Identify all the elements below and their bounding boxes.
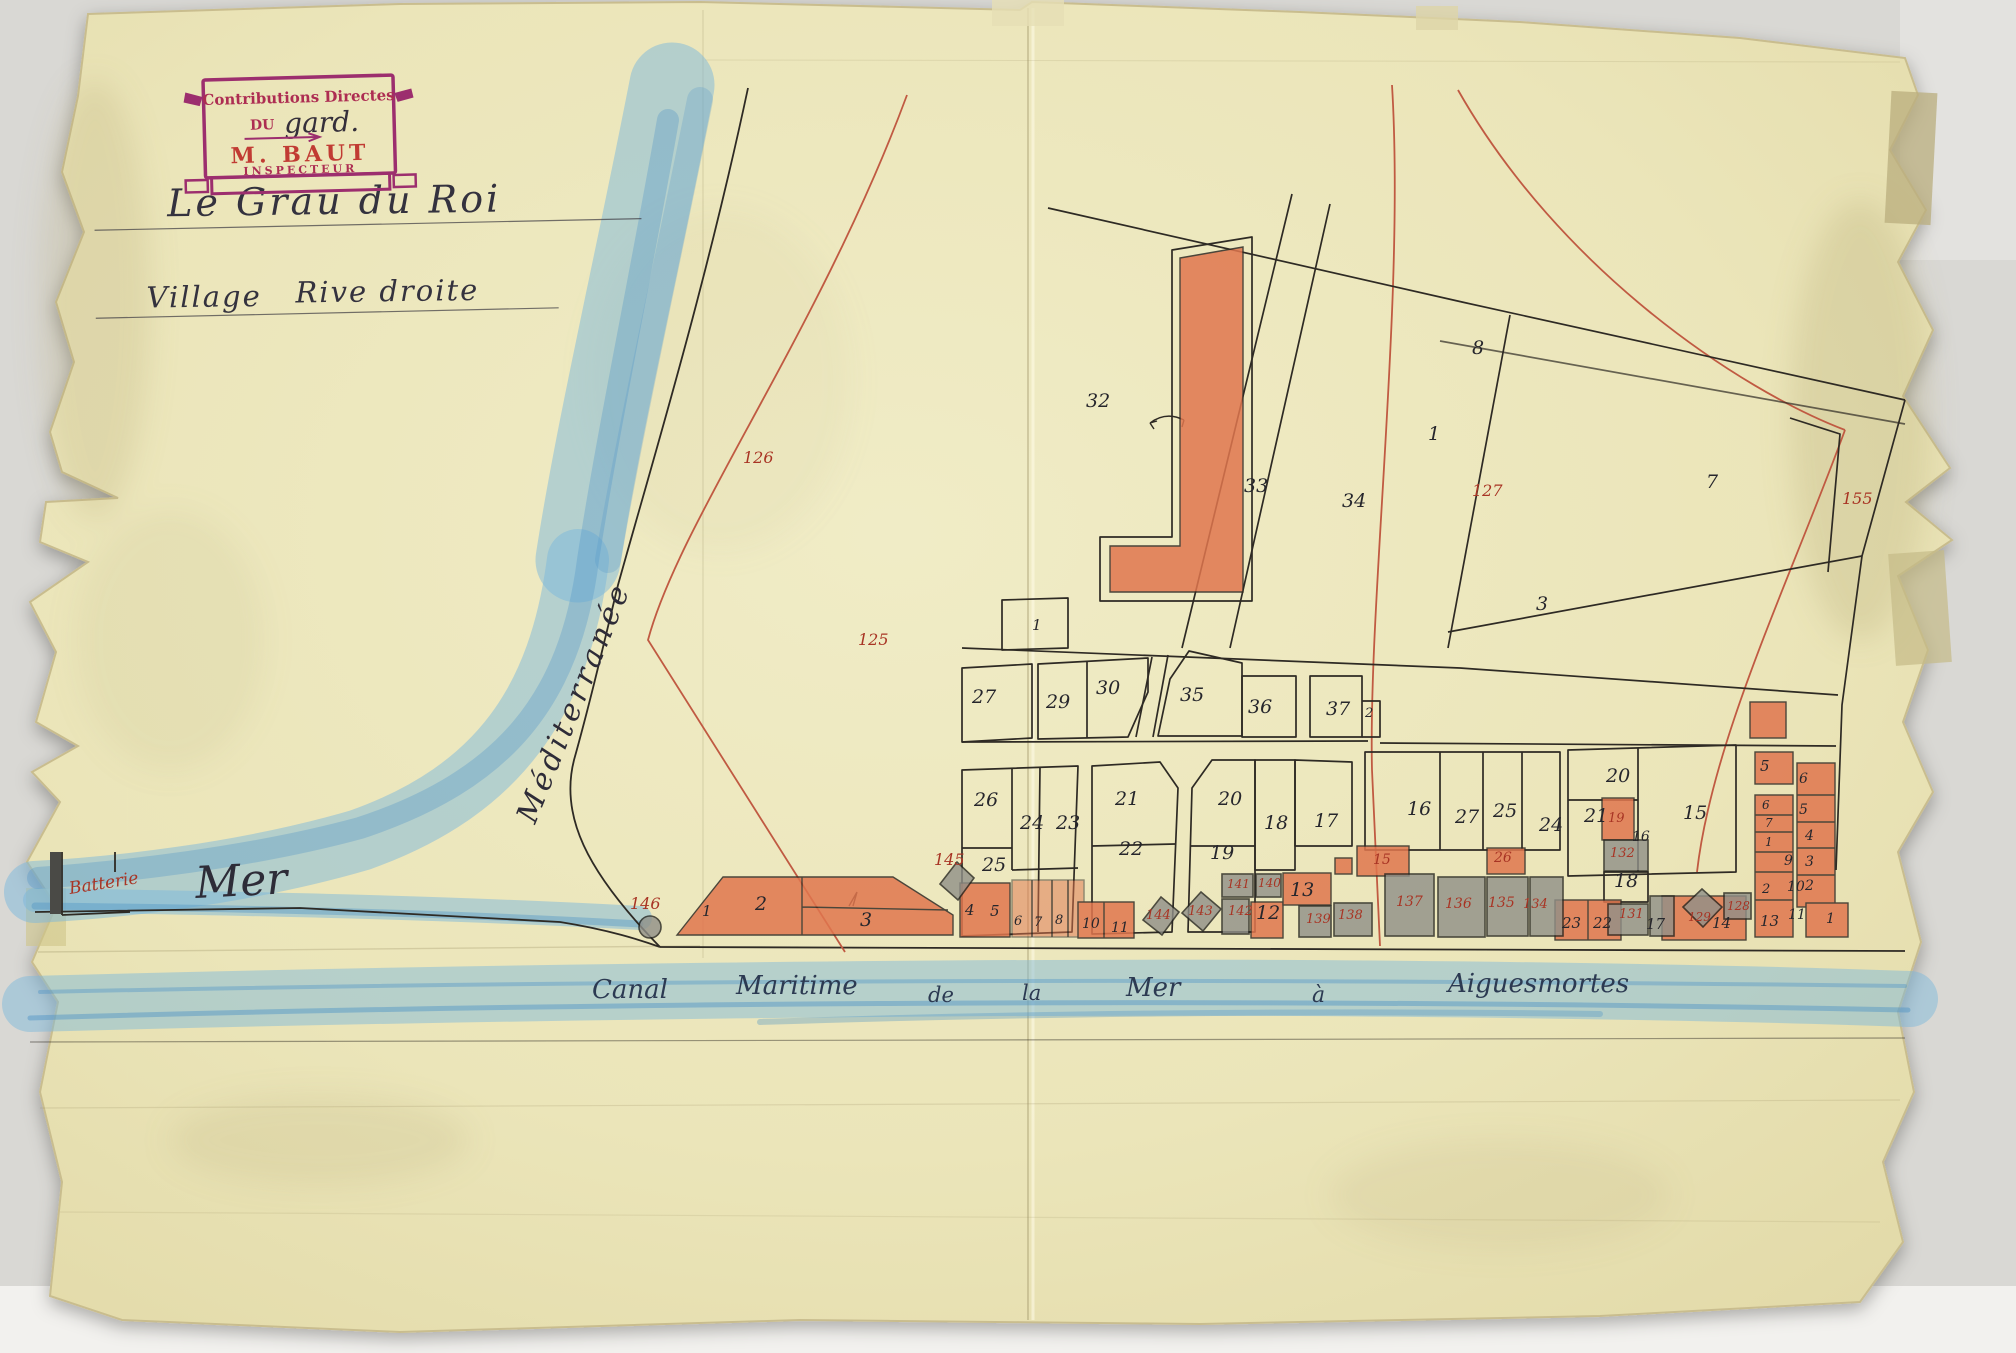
red-number: 135 — [1488, 895, 1515, 911]
red-number: 128 — [1727, 899, 1750, 913]
canal-word: Mer — [1125, 973, 1182, 1003]
red-number: 138 — [1338, 908, 1363, 923]
canal-word: Canal — [592, 975, 668, 1005]
parcel-number: 21 — [1114, 788, 1139, 810]
parcel-number: 21 — [1583, 805, 1608, 827]
red-number: 139 — [1306, 912, 1331, 927]
canal-word: la — [1022, 981, 1041, 1005]
parcel-number: 13 — [1760, 912, 1779, 930]
red-number: 142 — [1228, 904, 1253, 919]
parcel-number: 1 — [702, 902, 712, 920]
parcel-number: 3 — [1536, 593, 1548, 615]
subtitle-village: Village — [146, 279, 262, 315]
parcel-number: 9 — [1784, 853, 1793, 869]
parcel-number: 17 — [1314, 810, 1339, 832]
parcel-number: 6 — [1014, 914, 1022, 929]
parcel-number: 32 — [1086, 390, 1110, 412]
parcel-number: 29 — [1045, 691, 1070, 713]
parcel-number: 7 — [1706, 471, 1719, 493]
red-number: 19 — [1608, 811, 1625, 826]
photographed-map-scene: 3233341873127293035363722624232521222019… — [0, 0, 2016, 1353]
parcel-number: 19 — [1210, 842, 1234, 864]
parcel-number: 16 — [1632, 829, 1650, 845]
red-number: 127 — [1472, 481, 1503, 500]
parcel-number: 22 — [1592, 914, 1612, 932]
red-number: 134 — [1523, 897, 1548, 912]
parcel-number: 6 — [1799, 771, 1808, 787]
parcel-number: 2 — [1804, 878, 1814, 894]
parcel-number: 18 — [1264, 812, 1288, 834]
parcel-number: 16 — [1407, 798, 1431, 820]
parcel-number: 1 — [1765, 835, 1773, 849]
red-number: 141 — [1227, 877, 1250, 891]
red-number: 132 — [1610, 846, 1635, 861]
parcel-number: 8 — [1472, 337, 1484, 359]
red-number: 126 — [743, 448, 774, 467]
marker-146-circle — [639, 916, 661, 938]
parcel-number: 27 — [1454, 806, 1480, 828]
battery-dark-mark — [50, 852, 61, 914]
parcel-number: 4 — [1804, 828, 1814, 844]
parcel-number: 6 — [1762, 798, 1770, 812]
parcel-number: 2 — [1364, 706, 1373, 721]
red-number: 15 — [1373, 852, 1391, 868]
red-number: 131 — [1619, 907, 1644, 922]
parcel-number: 5 — [1799, 802, 1808, 818]
red-number: 137 — [1396, 894, 1423, 910]
red-number: 136 — [1445, 896, 1472, 912]
parcel-number: 36 — [1248, 696, 1272, 718]
red-number: 140 — [1258, 876, 1281, 890]
subtitle-rive-droite: Rive droite — [294, 273, 479, 310]
map-photo-svg: 3233341873127293035363722624232521222019… — [0, 0, 2016, 1353]
parcel-number: 3 — [1805, 854, 1814, 870]
parcel-number: 37 — [1326, 698, 1351, 720]
parcel-number: 35 — [1180, 684, 1204, 706]
parcel-number: 14 — [1712, 914, 1731, 932]
parcel-number: 8 — [1055, 913, 1063, 928]
parcel-number: 10 — [1082, 916, 1100, 932]
parcel-number: 5 — [1760, 757, 1770, 775]
red-number: 155 — [1842, 489, 1873, 508]
red-number: 143 — [1188, 904, 1213, 919]
map-title: Le Grau du Roi — [166, 177, 502, 226]
parcel-number: 2 — [1761, 882, 1770, 897]
parcel-number: 26 — [973, 789, 998, 811]
mer-label: Mer — [193, 853, 292, 909]
parcel-number: 15 — [1683, 802, 1707, 824]
parcel-number: 20 — [1217, 788, 1242, 810]
parcel-number: 20 — [1605, 765, 1630, 787]
stamp-du: DU — [250, 117, 275, 134]
stamp-handwritten-gard: gard. — [284, 105, 360, 140]
parcel-number: 33 — [1244, 475, 1268, 497]
parcel-number: 18 — [1614, 870, 1638, 892]
red-number: 129 — [1688, 910, 1711, 924]
red-number: 26 — [1493, 850, 1512, 866]
parcel-number: 23 — [1561, 914, 1581, 932]
parcel-number: 13 — [1290, 879, 1314, 901]
parcel-number: 2 — [754, 893, 767, 915]
red-number: 144 — [1146, 908, 1171, 923]
parcel-number: 7 — [1765, 816, 1773, 830]
parcel-number: 11 — [1111, 920, 1129, 936]
red-number: 146 — [630, 894, 661, 913]
parcel-number: 34 — [1342, 490, 1366, 512]
parcel-number: 24 — [1019, 812, 1044, 834]
parcel-number: 1 — [1428, 423, 1440, 445]
parcel-number: 10 — [1787, 879, 1805, 895]
parcel-number: 4 — [964, 901, 975, 919]
parcel-number: 7 — [1034, 915, 1043, 930]
parcel-number: 1 — [1032, 616, 1042, 634]
canal-word: Maritime — [735, 971, 858, 1001]
parcel-number: 27 — [971, 686, 997, 708]
canal-word: de — [928, 983, 954, 1007]
parcel-number: 24 — [1538, 814, 1563, 836]
parcel-number: 22 — [1118, 838, 1143, 860]
red-number: 125 — [858, 630, 889, 649]
parcel-number: 23 — [1055, 812, 1080, 834]
parcel-number: 12 — [1256, 902, 1280, 924]
parcel-number: 17 — [1646, 915, 1666, 933]
parcel-number: 1 — [1826, 911, 1835, 927]
parcel-number: 11 — [1788, 907, 1806, 923]
parcel-number: 5 — [990, 902, 1000, 920]
red-number: 145 — [934, 850, 965, 869]
parcel-number: 3 — [860, 909, 872, 931]
parcel-number: 30 — [1096, 677, 1120, 699]
parcel-number: 25 — [981, 854, 1006, 876]
canal-word: Aiguesmortes — [1446, 969, 1629, 999]
parcel-number: 25 — [1492, 800, 1517, 822]
canal-word: à — [1312, 983, 1325, 1008]
